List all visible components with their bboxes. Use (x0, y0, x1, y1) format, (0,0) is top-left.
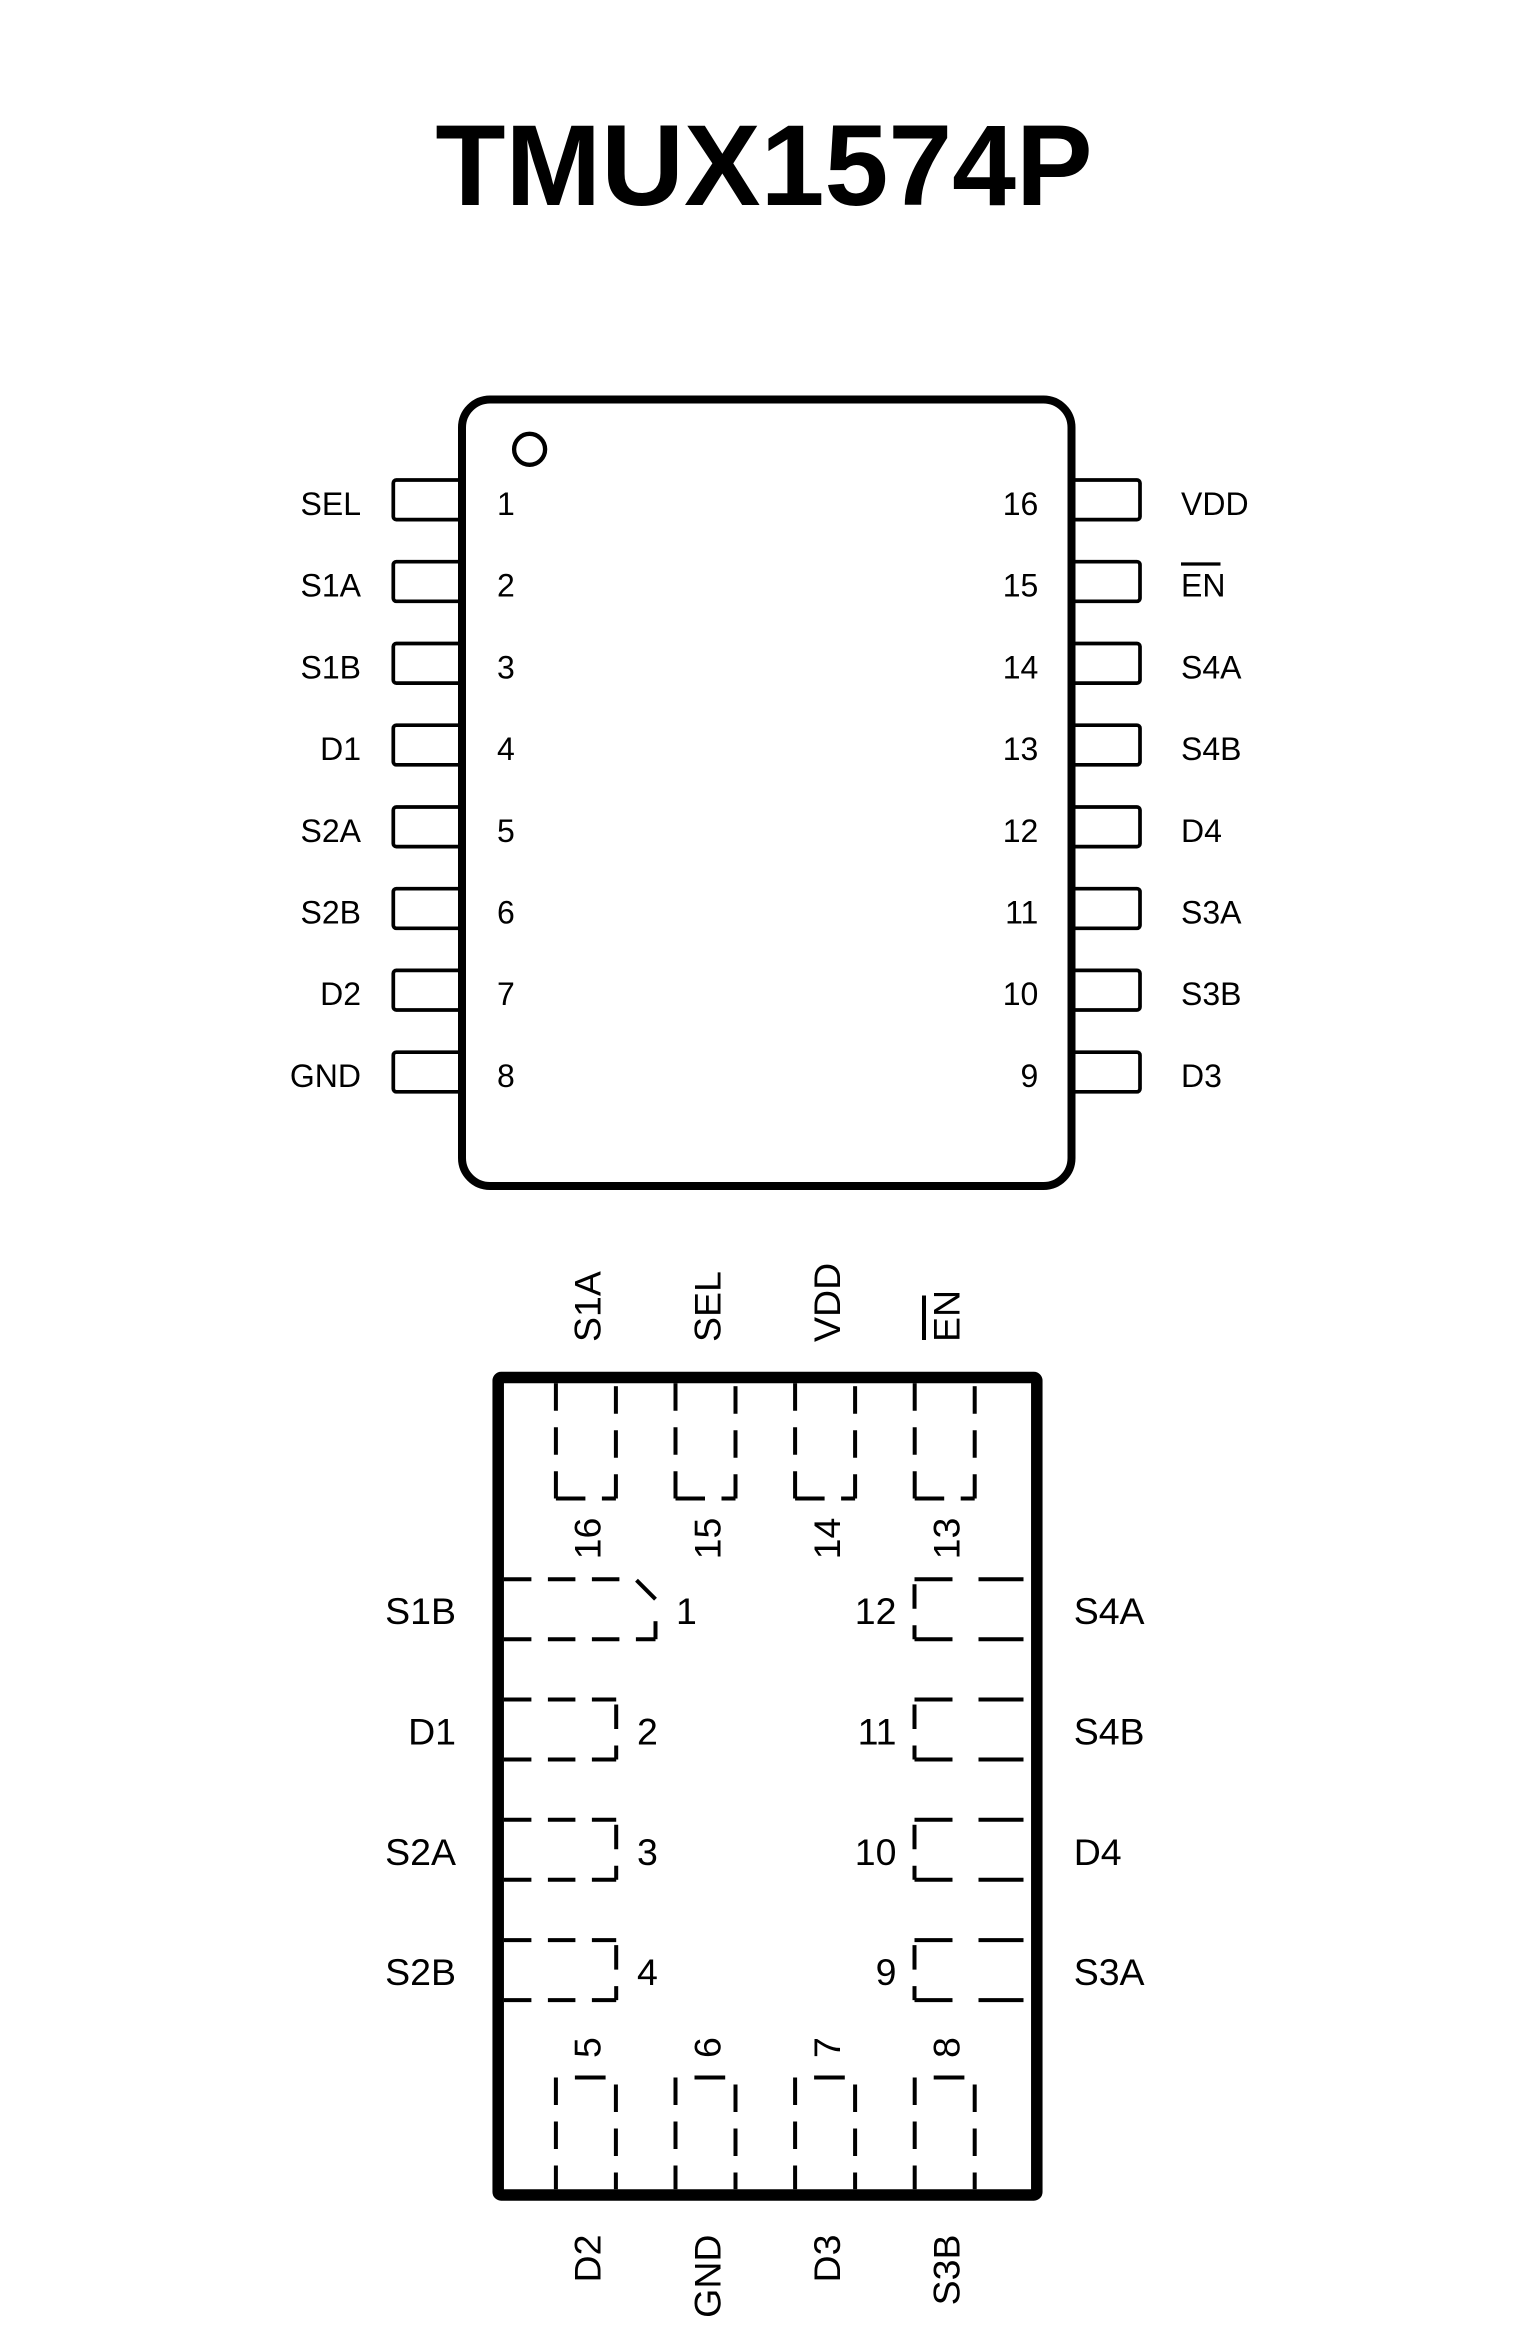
svg-text:D2: D2 (567, 2235, 609, 2283)
svg-text:13: 13 (926, 1518, 968, 1560)
svg-text:2: 2 (637, 1711, 658, 1753)
svg-text:9: 9 (1021, 1058, 1039, 1094)
svg-text:16: 16 (567, 1518, 609, 1560)
svg-text:S4A: S4A (1074, 1590, 1145, 1632)
svg-text:4: 4 (497, 731, 515, 767)
svg-text:10: 10 (855, 1831, 897, 1873)
svg-text:7: 7 (497, 976, 515, 1012)
svg-text:S3A: S3A (1074, 1951, 1145, 1993)
svg-text:8: 8 (497, 1058, 515, 1094)
svg-text:D3: D3 (806, 2235, 848, 2283)
svg-text:S2B: S2B (301, 895, 361, 931)
svg-text:TMUX1574P: TMUX1574P (435, 102, 1092, 230)
svg-text:GND: GND (686, 2235, 728, 2318)
svg-text:S3A: S3A (1181, 895, 1242, 931)
svg-text:9: 9 (876, 1951, 897, 1993)
svg-text:S3B: S3B (926, 2235, 968, 2306)
svg-text:15: 15 (686, 1518, 728, 1560)
svg-text:12: 12 (1003, 813, 1039, 849)
svg-text:11: 11 (1005, 895, 1038, 931)
svg-text:SEL: SEL (301, 486, 361, 522)
svg-text:D1: D1 (320, 731, 361, 767)
svg-text:6: 6 (497, 895, 515, 931)
svg-text:11: 11 (858, 1711, 897, 1753)
svg-text:14: 14 (1003, 649, 1039, 685)
svg-text:12: 12 (855, 1590, 897, 1632)
svg-text:14: 14 (806, 1518, 848, 1560)
svg-text:3: 3 (497, 649, 515, 685)
svg-text:8: 8 (926, 2037, 968, 2058)
svg-text:3: 3 (637, 1831, 658, 1873)
svg-text:15: 15 (1003, 568, 1039, 604)
svg-text:S1A: S1A (567, 1271, 609, 1342)
svg-text:4: 4 (637, 1951, 658, 1993)
svg-text:S4B: S4B (1181, 731, 1241, 767)
svg-text:EN: EN (926, 1290, 968, 1342)
svg-text:VDD: VDD (806, 1263, 848, 1342)
svg-text:S1B: S1B (385, 1590, 456, 1632)
svg-text:D3: D3 (1181, 1058, 1222, 1094)
svg-text:S2A: S2A (301, 813, 362, 849)
svg-text:6: 6 (686, 2037, 728, 2058)
svg-text:S1A: S1A (301, 568, 362, 604)
svg-text:5: 5 (567, 2037, 609, 2058)
svg-text:5: 5 (497, 813, 515, 849)
svg-text:GND: GND (290, 1058, 361, 1094)
svg-text:S4A: S4A (1181, 649, 1242, 685)
svg-text:SEL: SEL (686, 1271, 728, 1342)
svg-text:S1B: S1B (301, 649, 361, 685)
svg-text:D1: D1 (408, 1711, 456, 1753)
svg-text:S4B: S4B (1074, 1711, 1145, 1753)
svg-text:2: 2 (497, 568, 515, 604)
svg-text:7: 7 (806, 2037, 848, 2058)
svg-text:10: 10 (1003, 976, 1039, 1012)
svg-text:D4: D4 (1181, 813, 1222, 849)
svg-text:D2: D2 (320, 976, 361, 1012)
svg-text:16: 16 (1003, 486, 1039, 522)
svg-text:S2B: S2B (385, 1951, 456, 1993)
svg-text:VDD: VDD (1181, 486, 1249, 522)
svg-text:EN: EN (1181, 568, 1225, 604)
svg-text:S2A: S2A (385, 1831, 456, 1873)
svg-text:1: 1 (676, 1590, 697, 1632)
svg-text:13: 13 (1003, 731, 1039, 767)
svg-text:1: 1 (497, 486, 515, 522)
svg-text:D4: D4 (1074, 1831, 1122, 1873)
svg-text:S3B: S3B (1181, 976, 1241, 1012)
